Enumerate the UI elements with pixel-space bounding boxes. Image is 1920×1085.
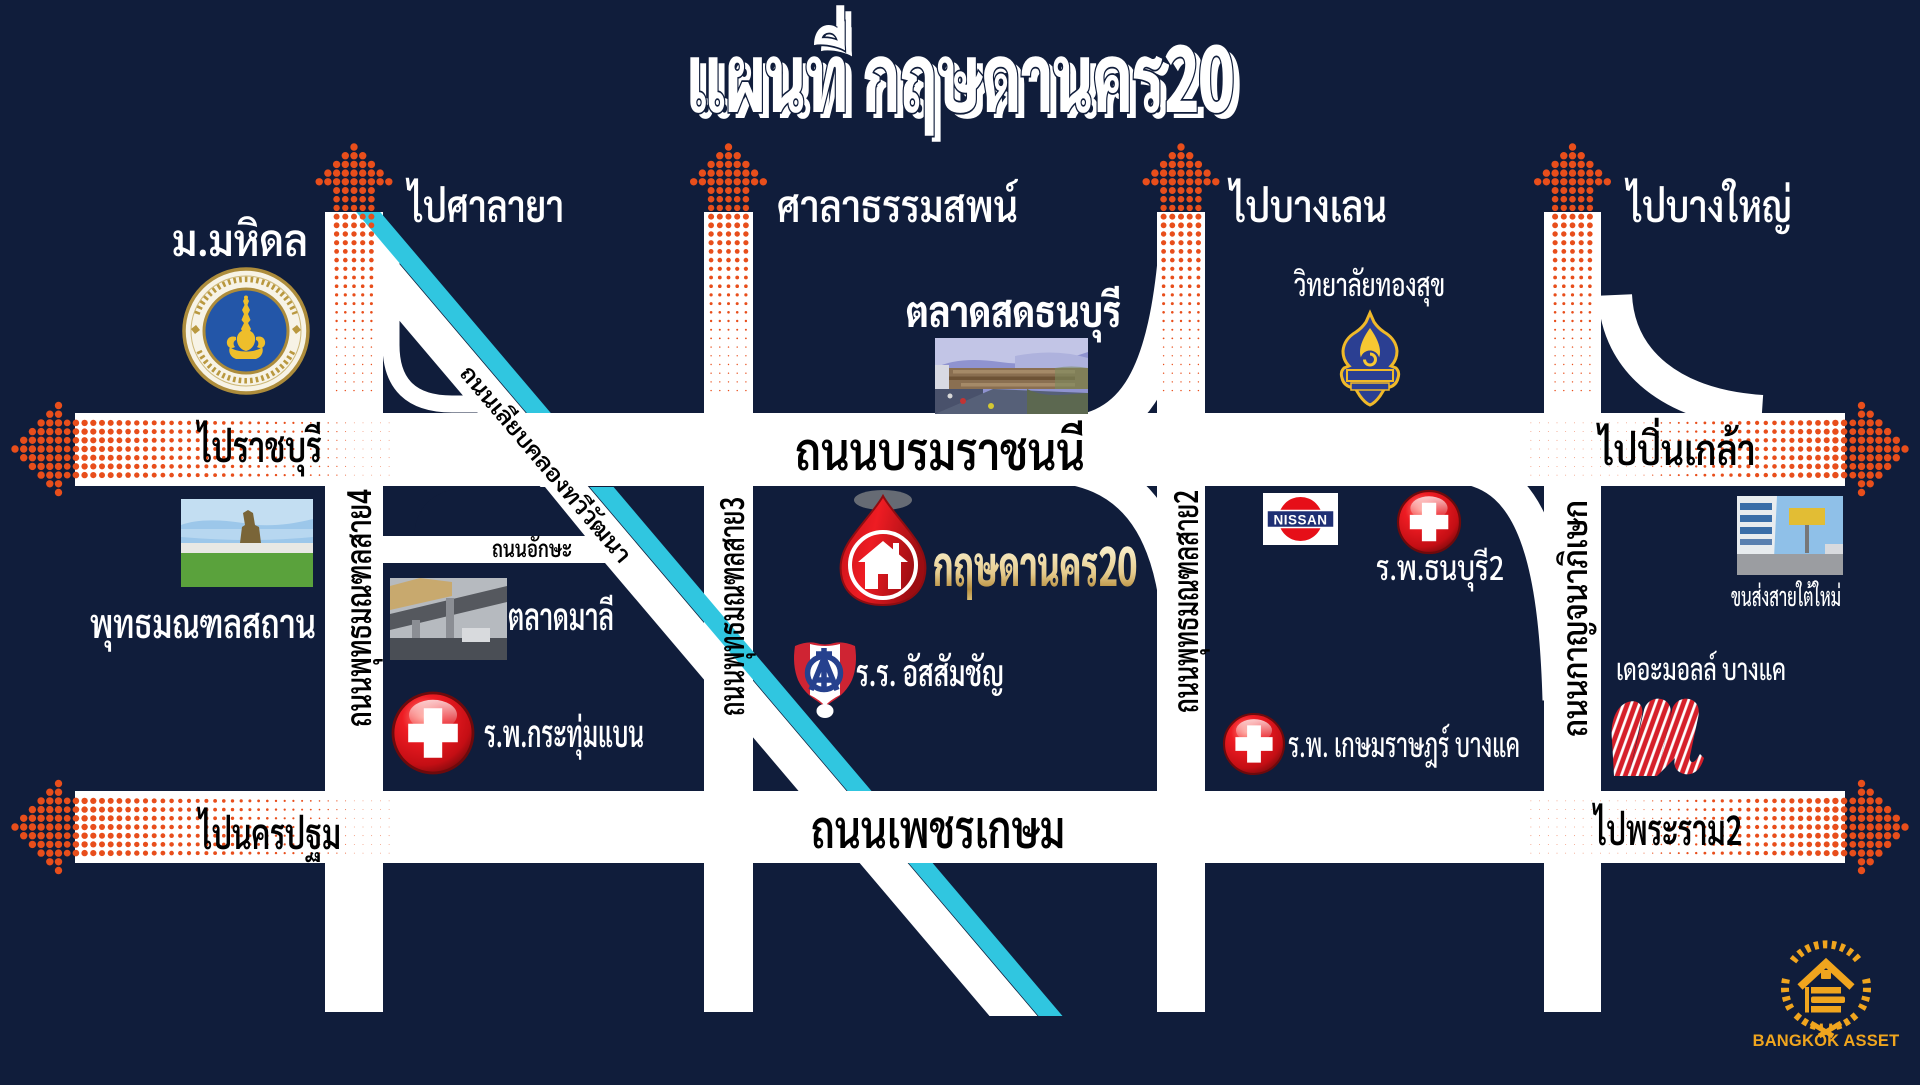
svg-text:BANGKOK ASSET: BANGKOK ASSET [1753,1032,1900,1050]
svg-text:NISSAN: NISSAN [1273,513,1327,528]
